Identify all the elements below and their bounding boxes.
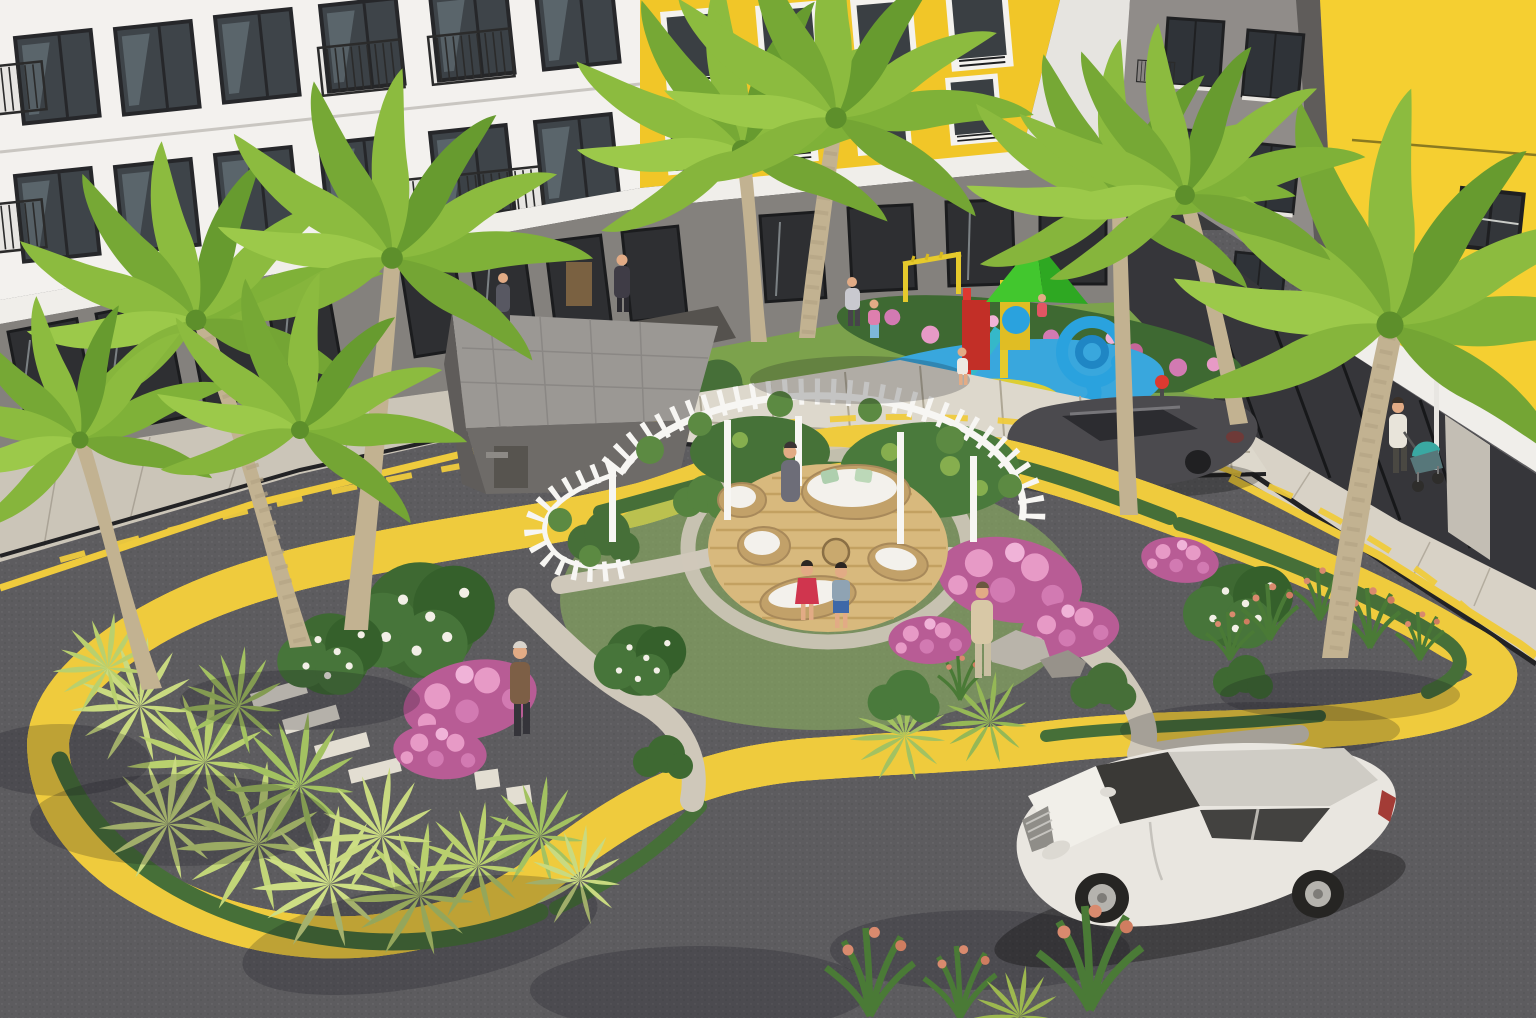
- coffee-table: [823, 539, 849, 565]
- balcony-railing: [0, 61, 47, 117]
- storefront-interior-glow: [566, 262, 592, 306]
- utility-vent: [486, 452, 508, 458]
- sedan-wheel: [1185, 450, 1211, 474]
- playground-porthole: [1002, 306, 1030, 334]
- window: [215, 9, 300, 102]
- wicker-chair: [738, 527, 790, 565]
- sedan-taillight: [1226, 431, 1244, 443]
- window: [535, 0, 620, 70]
- utility-structure: [444, 312, 718, 494]
- suv-mirror: [1100, 787, 1116, 797]
- green-pillow: [854, 468, 873, 483]
- window: [115, 21, 200, 114]
- person-kid-on-slide: [1037, 294, 1047, 317]
- rendered-scene: Aerial 3D rendering of a residential com…: [0, 0, 1536, 1018]
- scene-canvas: Aerial 3D rendering of a residential com…: [0, 0, 1536, 1018]
- wicker-daybed: [802, 465, 910, 519]
- balcony-railing: [428, 28, 515, 84]
